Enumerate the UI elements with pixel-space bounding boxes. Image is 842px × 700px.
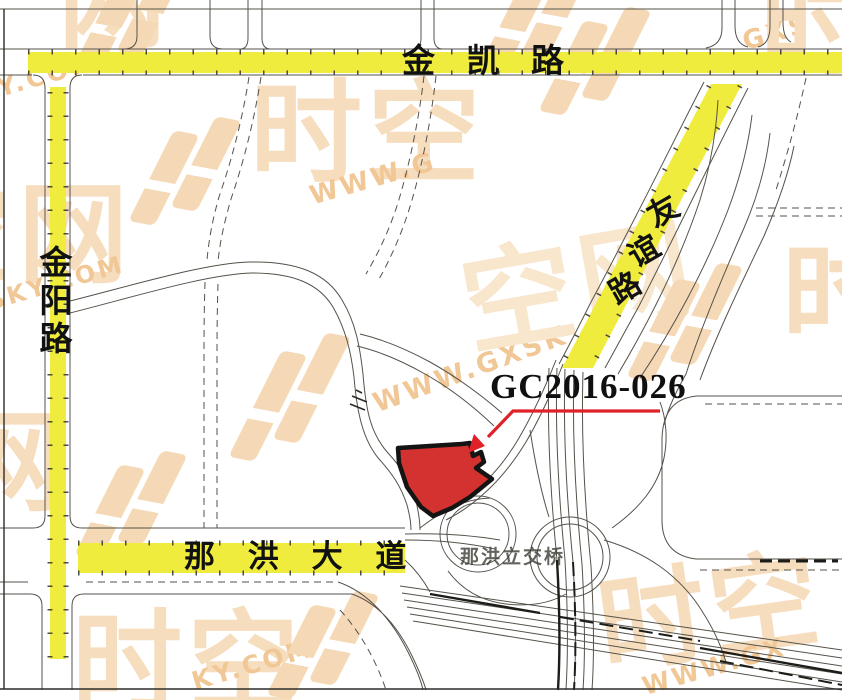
road-label-char: 阳 xyxy=(38,284,74,322)
road-label-jinkai: 金 凯 路 xyxy=(402,44,570,77)
road-label-char: 金 xyxy=(38,246,74,284)
road-label-char: 路 xyxy=(38,322,74,360)
yellow-road-jinyang xyxy=(50,87,66,659)
parcel-polygon xyxy=(398,443,492,516)
road-label-nahong: 那 洪 大 道 xyxy=(184,542,410,573)
road-label-jinyang: 金 阳 路 xyxy=(38,246,74,360)
yellow-road-youyi xyxy=(562,84,742,368)
road-network-svg xyxy=(0,0,842,700)
parcel-location-map: Y.COM 网 时空 WWW.G GXS 时 空网 XSKY.COM WWW.G… xyxy=(0,0,842,700)
parcel-code-label: GC2016-026 xyxy=(490,369,687,404)
interchange-label: 那洪立交桥 xyxy=(460,548,565,567)
